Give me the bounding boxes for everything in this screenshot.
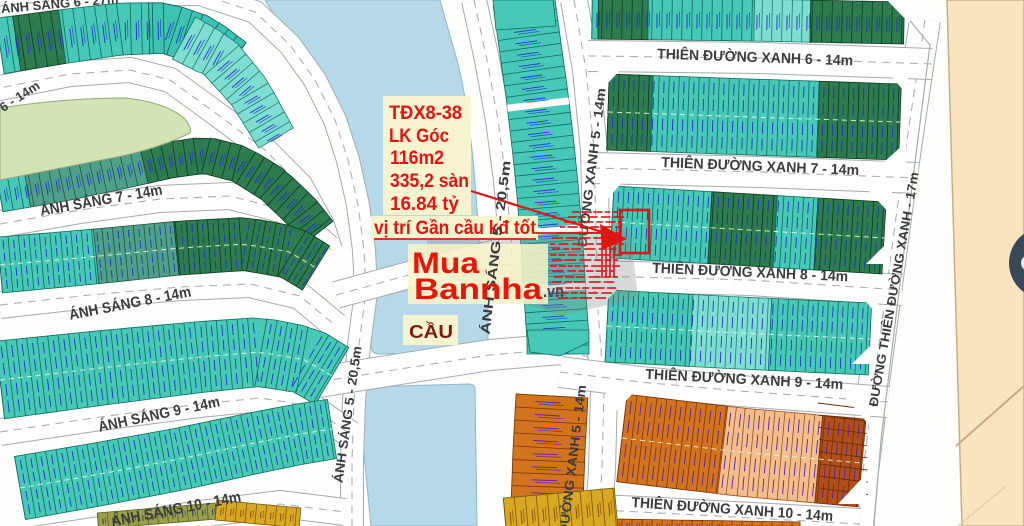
svg-text:TĐX8-38: TĐX8-38 [389,103,462,124]
svg-text:LK Góc: LK Góc [389,126,449,147]
svg-text:116m2: 116m2 [390,148,444,169]
svg-text:Bannha: Bannha [414,273,542,306]
svg-text:335,2 sàn: 335,2 sàn [390,171,469,192]
svg-text:CẦU: CẦU [409,321,453,342]
svg-text:.vn: .vn [543,282,564,301]
svg-text:vị trí Gần cầu kđ tốt: vị trí Gần cầu kđ tốt [374,218,537,239]
svg-text:16.84 tỷ: 16.84 tỷ [390,194,459,215]
